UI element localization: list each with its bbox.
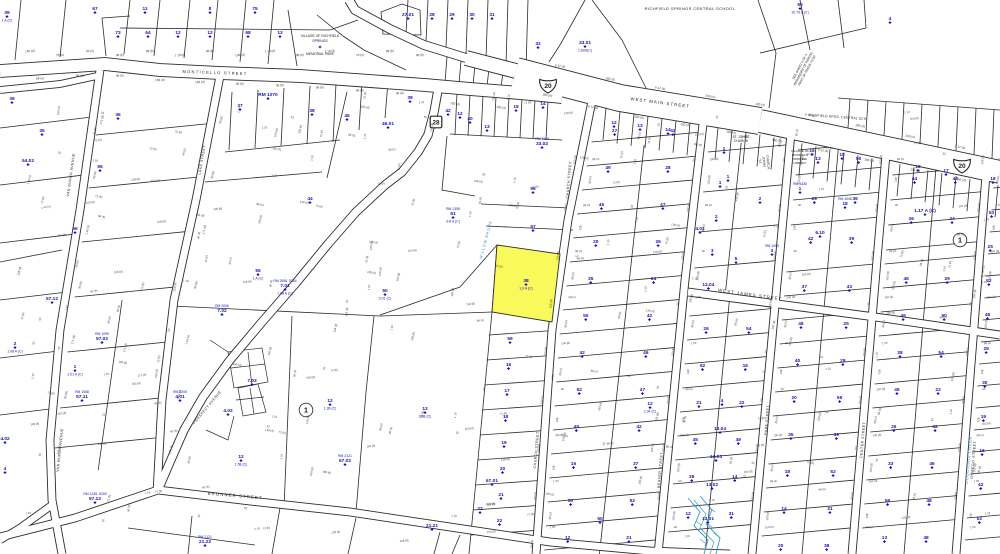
svg-text:52: 52: [577, 387, 583, 393]
svg-text:1 10: 1 10: [709, 497, 715, 502]
svg-text:1 10: 1 10: [949, 409, 954, 415]
svg-text:150 (d): 150 (d): [987, 295, 996, 300]
svg-text:128: 128: [980, 369, 985, 375]
svg-text:14: 14: [732, 474, 738, 480]
svg-text:72 (b): 72 (b): [757, 443, 765, 448]
svg-text:72 (b): 72 (b): [363, 91, 368, 99]
svg-text:48: 48: [985, 312, 991, 318]
svg-text:96 (b): 96 (b): [316, 85, 324, 89]
svg-text:33.02: 33.02: [536, 141, 548, 147]
svg-text:29: 29: [812, 196, 818, 202]
svg-text:29: 29: [944, 276, 950, 282]
svg-text:15: 15: [839, 152, 845, 158]
svg-text:1 10 (d): 1 10 (d): [324, 49, 335, 54]
svg-text:12: 12: [685, 511, 691, 517]
svg-text:36: 36: [689, 474, 695, 480]
svg-text:57.12: 57.12: [46, 296, 58, 302]
svg-text:26: 26: [891, 424, 897, 430]
svg-text:99 (s): 99 (s): [865, 525, 873, 530]
svg-text:13: 13: [277, 30, 283, 36]
svg-text:1 10: 1 10: [818, 187, 824, 192]
svg-text:96 (b): 96 (b): [276, 83, 284, 87]
svg-text:1 50: 1 50: [550, 525, 556, 529]
svg-text:66 (d): 66 (d): [961, 396, 966, 404]
svg-text:1 10: 1 10: [904, 110, 910, 115]
svg-text:24: 24: [651, 276, 657, 282]
svg-text:66 (d): 66 (d): [536, 444, 541, 452]
svg-text:128: 128: [865, 513, 870, 519]
svg-text:39: 39: [834, 432, 840, 438]
svg-text:50: 50: [856, 156, 862, 162]
svg-text:66 (d): 66 (d): [874, 204, 879, 212]
svg-text:72 (b): 72 (b): [155, 489, 163, 494]
svg-text:20: 20: [593, 239, 599, 245]
svg-text:1: 1: [719, 180, 722, 186]
svg-text:49: 49: [894, 387, 900, 393]
svg-text:75: 75: [252, 6, 258, 12]
svg-text:1 10: 1 10: [643, 286, 648, 292]
svg-text:14: 14: [665, 127, 671, 133]
svg-text:40 (s): 40 (s): [889, 224, 894, 232]
svg-text:3: 3: [711, 248, 714, 254]
svg-text:72 (b): 72 (b): [500, 411, 508, 416]
svg-text:46.01: 46.01: [382, 121, 394, 127]
svg-text:72 (b): 72 (b): [647, 136, 652, 144]
svg-text:12: 12: [647, 401, 653, 407]
svg-text:66 (d): 66 (d): [862, 348, 867, 356]
svg-text:18: 18: [785, 469, 791, 475]
svg-text:39: 39: [849, 236, 855, 242]
svg-text:150 (d): 150 (d): [235, 53, 245, 58]
svg-text:128: 128: [968, 513, 973, 519]
svg-text:98 (b): 98 (b): [116, 53, 124, 58]
svg-text:2: 2: [14, 341, 17, 347]
svg-text:128: 128: [686, 369, 691, 375]
svg-text:128: 128: [877, 369, 882, 375]
svg-text:72 (b): 72 (b): [94, 138, 102, 143]
svg-text:33.01: 33.01: [579, 40, 591, 46]
svg-text:55: 55: [97, 164, 103, 170]
svg-text:1 50: 1 50: [553, 479, 559, 483]
svg-text:1 10: 1 10: [825, 366, 831, 371]
svg-text:1 50: 1 50: [970, 525, 976, 529]
svg-text:72 (b): 72 (b): [806, 151, 814, 156]
svg-text:7.02: 7.02: [217, 308, 227, 314]
svg-text:76 (s): 76 (s): [356, 53, 364, 58]
svg-text:40 (s): 40 (s): [770, 464, 775, 472]
svg-text:99 (s): 99 (s): [583, 203, 591, 208]
svg-text:12: 12: [207, 30, 213, 36]
svg-text:1 A (C): 1 A (C): [253, 276, 264, 280]
svg-text:150 (d): 150 (d): [773, 433, 782, 438]
svg-text:72 (b): 72 (b): [612, 180, 620, 185]
svg-text:66 (s): 66 (s): [478, 197, 483, 205]
svg-text:1.01 A (C): 1.01 A (C): [67, 372, 83, 376]
svg-text:67.01: 67.01: [486, 478, 498, 484]
svg-text:36: 36: [852, 196, 858, 202]
svg-text:82 (s): 82 (s): [86, 49, 94, 54]
svg-text:1.17 A (C): 1.17 A (C): [914, 208, 936, 214]
svg-text:40 (s): 40 (s): [701, 224, 706, 232]
svg-text:1.58 (C): 1.58 (C): [235, 462, 248, 466]
svg-text:98 (b): 98 (b): [146, 49, 154, 54]
svg-text:48: 48: [923, 535, 929, 541]
svg-text:66 (d): 66 (d): [777, 204, 782, 212]
svg-text:5: 5: [735, 256, 738, 262]
svg-text:18: 18: [842, 201, 848, 207]
svg-text:72 (b): 72 (b): [377, 181, 385, 186]
svg-text:72 (b): 72 (b): [947, 260, 952, 268]
svg-text:13: 13: [484, 124, 490, 130]
svg-text:RM 1070: RM 1070: [258, 92, 278, 98]
svg-text:2.34 (C): 2.34 (C): [644, 409, 657, 413]
svg-text:98 (b): 98 (b): [386, 49, 394, 54]
svg-text:1 10: 1 10: [774, 224, 780, 229]
svg-text:1 10: 1 10: [271, 173, 277, 178]
svg-text:40 (s): 40 (s): [873, 416, 878, 424]
svg-text:30: 30: [469, 12, 475, 18]
svg-text:37: 37: [633, 461, 639, 467]
svg-text:26: 26: [655, 239, 661, 245]
svg-text:66 (s): 66 (s): [388, 147, 396, 152]
svg-text:60: 60: [797, 2, 803, 8]
svg-text:72 (b): 72 (b): [762, 230, 767, 238]
svg-text:98 (b): 98 (b): [416, 53, 424, 58]
svg-text:72 (b): 72 (b): [397, 163, 402, 171]
svg-text:66 (s): 66 (s): [939, 315, 947, 320]
svg-text:13.01: 13.01: [702, 516, 714, 522]
svg-text:40 (s): 40 (s): [570, 272, 575, 280]
svg-text:52: 52: [700, 363, 706, 369]
svg-text:45: 45: [693, 437, 699, 443]
svg-text:54.02: 54.02: [22, 158, 34, 164]
svg-text:12: 12: [175, 30, 181, 36]
svg-text:72 (b): 72 (b): [524, 100, 532, 105]
svg-text:RM 1245, 5300: RM 1245, 5300: [83, 492, 106, 496]
svg-text:1 10: 1 10: [874, 352, 879, 358]
svg-text:1 50: 1 50: [882, 341, 888, 345]
svg-text:RM 1398: RM 1398: [446, 207, 460, 211]
svg-text:20: 20: [792, 395, 798, 401]
svg-text:12: 12: [457, 111, 463, 117]
svg-text:17: 17: [504, 388, 510, 394]
svg-text:RM 2121: RM 2121: [338, 454, 352, 458]
svg-text:40: 40: [467, 116, 473, 122]
svg-text:27: 27: [612, 128, 618, 134]
svg-text:20: 20: [958, 163, 966, 170]
svg-text:57.02: 57.02: [96, 336, 108, 342]
svg-text:4: 4: [889, 16, 892, 22]
svg-text:128: 128: [578, 225, 583, 231]
svg-text:39: 39: [9, 96, 15, 102]
svg-text:27.01: 27.01: [402, 12, 414, 18]
svg-text:2: 2: [715, 214, 718, 220]
svg-text:99 (s): 99 (s): [976, 433, 984, 438]
svg-text:128: 128: [991, 225, 996, 231]
svg-text:36: 36: [909, 216, 915, 222]
svg-text:RM 4008: RM 4008: [838, 197, 852, 201]
svg-text:1 10 (d): 1 10 (d): [174, 53, 185, 58]
svg-text:128: 128: [976, 417, 981, 423]
svg-text:96 (b): 96 (b): [76, 73, 84, 77]
svg-text:13.03: 13.03: [710, 454, 722, 460]
svg-text:67.02: 67.02: [339, 458, 351, 464]
svg-text:1 50: 1 50: [695, 295, 701, 299]
svg-text:150 (d): 150 (d): [786, 295, 795, 300]
svg-text:72 (b): 72 (b): [619, 151, 624, 159]
svg-text:1 10: 1 10: [692, 276, 698, 281]
svg-text:150 (d): 150 (d): [868, 479, 877, 484]
svg-text:128: 128: [792, 225, 797, 231]
svg-text:150 (d): 150 (d): [195, 80, 205, 85]
svg-text:40 (s): 40 (s): [558, 368, 563, 376]
svg-text:1 10: 1 10: [271, 414, 277, 419]
svg-text:RM 1005: RM 1005: [765, 244, 779, 248]
svg-text:72 (b): 72 (b): [515, 202, 520, 210]
svg-text:98 (b): 98 (b): [206, 49, 214, 54]
svg-text:13.04: 13.04: [702, 282, 714, 288]
svg-text:1 10: 1 10: [983, 217, 989, 222]
svg-text:1 10: 1 10: [92, 158, 98, 163]
svg-text:RM 1088: RM 1088: [75, 390, 89, 394]
svg-text:1 10: 1 10: [981, 280, 987, 285]
svg-text:47: 47: [640, 387, 646, 393]
svg-text:1 10: 1 10: [453, 412, 458, 418]
svg-text:28: 28: [665, 165, 671, 171]
svg-text:1 10: 1 10: [684, 534, 690, 539]
svg-text:99 (s): 99 (s): [897, 157, 905, 162]
svg-text:1 10: 1 10: [25, 511, 31, 516]
svg-text:21: 21: [626, 535, 632, 541]
svg-text:49: 49: [574, 424, 580, 430]
svg-text:40 (s): 40 (s): [548, 512, 553, 520]
svg-text:72 (b): 72 (b): [914, 141, 922, 146]
svg-text:76 (s): 76 (s): [56, 53, 64, 58]
svg-text:19: 19: [981, 414, 987, 420]
svg-text:99 (s): 99 (s): [770, 479, 778, 484]
svg-text:64: 64: [145, 30, 151, 36]
svg-text:72 (b): 72 (b): [527, 512, 535, 517]
svg-text:150 (d): 150 (d): [25, 49, 35, 54]
svg-text:66 (d): 66 (d): [533, 492, 538, 500]
svg-text:72 (b): 72 (b): [319, 130, 324, 138]
svg-text:45: 45: [344, 113, 350, 119]
svg-text:1.9 A (C): 1.9 A (C): [519, 286, 533, 290]
svg-text:30: 30: [982, 380, 988, 386]
svg-text:ST.: ST.: [758, 159, 762, 164]
svg-text:3-8 A (C): 3-8 A (C): [446, 219, 460, 223]
svg-text:1 10 (d): 1 10 (d): [264, 49, 275, 54]
svg-text:72 (b): 72 (b): [263, 526, 271, 531]
svg-text:21.22: 21.22: [199, 539, 211, 545]
svg-text:66 (s): 66 (s): [292, 369, 297, 377]
svg-text:150 (d): 150 (d): [709, 157, 718, 162]
svg-text:1 10: 1 10: [279, 453, 284, 459]
svg-text:46: 46: [904, 276, 910, 282]
svg-text:73: 73: [115, 30, 121, 36]
svg-text:21: 21: [498, 492, 504, 498]
svg-text:50: 50: [597, 516, 603, 522]
svg-text:1: 1: [723, 146, 726, 152]
svg-text:128: 128: [555, 417, 560, 423]
svg-text:CHURCH: CHURCH: [734, 139, 749, 143]
svg-text:22: 22: [497, 518, 503, 524]
svg-text:29: 29: [983, 346, 989, 352]
svg-text:150 (d): 150 (d): [155, 78, 165, 83]
svg-text:40 (s): 40 (s): [774, 416, 779, 424]
svg-text:38: 38: [523, 278, 529, 284]
svg-text:13: 13: [815, 156, 821, 162]
svg-text:66 (d): 66 (d): [858, 396, 863, 404]
svg-text:150 (d): 150 (d): [680, 433, 689, 438]
svg-text:31: 31: [827, 506, 833, 512]
svg-text:58 (s): 58 (s): [36, 76, 44, 80]
svg-text:1: 1: [74, 364, 77, 370]
svg-text:40 (s): 40 (s): [588, 176, 593, 184]
svg-text:35: 35: [588, 276, 594, 282]
svg-text:1: 1: [727, 174, 730, 180]
svg-text:12: 12: [327, 398, 333, 404]
svg-text:56: 56: [72, 226, 78, 232]
svg-text:68: 68: [245, 30, 251, 36]
svg-text:99 (s): 99 (s): [705, 203, 713, 208]
svg-text:RM 7118: RM 7118: [535, 137, 549, 141]
svg-text:1 10: 1 10: [262, 125, 268, 130]
svg-text:40 (s): 40 (s): [563, 320, 568, 328]
svg-text:99 (s): 99 (s): [592, 157, 600, 162]
svg-text:1.08 A (C): 1.08 A (C): [277, 291, 293, 295]
svg-text:54: 54: [938, 350, 944, 356]
svg-text:1 50: 1 50: [691, 341, 697, 345]
svg-text:66 (d): 66 (d): [850, 492, 855, 500]
svg-text:10.75 A (C): 10.75 A (C): [791, 10, 809, 14]
svg-text:66 (d): 66 (d): [666, 396, 671, 404]
svg-text:8: 8: [209, 6, 212, 12]
svg-text:46: 46: [599, 202, 605, 208]
svg-text:38: 38: [897, 350, 903, 356]
svg-text:150 (d): 150 (d): [876, 387, 885, 392]
svg-text:6.10: 6.10: [815, 230, 825, 236]
svg-text:66 (s): 66 (s): [606, 441, 614, 446]
svg-text:1 10: 1 10: [363, 133, 368, 139]
svg-text:42: 42: [445, 108, 451, 114]
svg-text:96 (b): 96 (b): [396, 91, 404, 95]
svg-text:40 (s): 40 (s): [690, 320, 695, 328]
svg-text:40 (s): 40 (s): [881, 320, 886, 328]
svg-text:2: 2: [759, 196, 762, 202]
svg-text:128: 128: [894, 177, 899, 183]
svg-text:1 50: 1 50: [996, 203, 1000, 207]
svg-text:SPRINGS: SPRINGS: [312, 39, 328, 43]
svg-text:RM 2121: RM 2121: [198, 535, 212, 539]
svg-text:1 10: 1 10: [390, 324, 395, 330]
svg-text:55: 55: [255, 268, 261, 274]
svg-text:66 (s): 66 (s): [228, 257, 233, 265]
svg-text:1 10: 1 10: [254, 526, 260, 531]
svg-text:50: 50: [583, 313, 589, 319]
svg-text:31: 31: [489, 12, 495, 18]
svg-text:20: 20: [544, 83, 552, 90]
svg-text:66 (d): 66 (d): [529, 540, 534, 548]
svg-text:RICHFIELD SPRINGS CENTRAL SCHO: RICHFIELD SPRINGS CENTRAL SCHOOL: [645, 6, 736, 11]
svg-text:4: 4: [4, 466, 7, 472]
svg-text:42: 42: [670, 128, 676, 134]
svg-text:36: 36: [115, 112, 121, 118]
svg-text:35: 35: [788, 432, 794, 438]
svg-text:20: 20: [778, 543, 784, 549]
svg-text:22: 22: [477, 506, 483, 512]
svg-text:52: 52: [977, 516, 983, 522]
svg-text:13: 13: [882, 535, 888, 541]
svg-text:66 (s): 66 (s): [268, 280, 273, 288]
svg-text:28: 28: [840, 358, 846, 364]
svg-text:66 (s): 66 (s): [196, 232, 201, 240]
svg-text:72 (b): 72 (b): [757, 416, 765, 421]
svg-text:1.36 (C): 1.36 (C): [324, 406, 337, 410]
svg-text:22: 22: [935, 387, 941, 393]
svg-text:66 (s): 66 (s): [477, 318, 485, 323]
svg-text:47: 47: [660, 202, 666, 208]
svg-text:66 (d): 66 (d): [953, 492, 958, 500]
svg-text:32: 32: [535, 41, 541, 47]
svg-text:34: 34: [949, 216, 955, 222]
svg-text:99 (s): 99 (s): [984, 341, 992, 346]
svg-text:12: 12: [611, 120, 617, 126]
svg-text:1 10: 1 10: [183, 278, 189, 283]
svg-text:150 (d): 150 (d): [990, 249, 999, 254]
svg-text:57.11: 57.11: [76, 394, 88, 400]
svg-text:32: 32: [932, 424, 938, 430]
svg-text:13: 13: [637, 123, 643, 129]
svg-text:VILLAGE OF RICHFIELD: VILLAGE OF RICHFIELD: [301, 34, 340, 38]
svg-text:RM 2006: RM 2006: [215, 304, 229, 308]
svg-text:66 (s): 66 (s): [577, 256, 585, 261]
svg-text:16: 16: [743, 363, 749, 369]
svg-text:1 10: 1 10: [506, 94, 511, 100]
svg-text:20: 20: [500, 466, 506, 472]
svg-text:66 (d): 66 (d): [750, 492, 755, 500]
svg-text:150 (d): 150 (d): [872, 433, 881, 438]
svg-text:72 (b): 72 (b): [826, 146, 834, 151]
svg-text:4.02: 4.02: [0, 436, 10, 442]
svg-text:66 (s): 66 (s): [126, 504, 131, 512]
svg-text:1 10: 1 10: [367, 284, 372, 290]
svg-text:52: 52: [830, 469, 836, 475]
svg-text:48: 48: [926, 498, 932, 504]
svg-text:13.04: 13.04: [714, 426, 726, 432]
svg-text:16: 16: [571, 461, 577, 467]
svg-text:42: 42: [636, 424, 642, 430]
svg-text:72 (b): 72 (b): [93, 127, 98, 135]
svg-text:57: 57: [530, 224, 536, 230]
svg-text:1 10: 1 10: [419, 100, 425, 105]
svg-text:21.21: 21.21: [426, 523, 438, 529]
svg-text:38: 38: [824, 543, 830, 549]
svg-text:42: 42: [647, 313, 653, 319]
svg-text:55: 55: [885, 498, 891, 504]
svg-text:72 (b): 72 (b): [740, 134, 748, 139]
svg-text:128: 128: [551, 465, 556, 471]
svg-text:28: 28: [429, 12, 435, 18]
svg-text:40: 40: [795, 358, 801, 364]
svg-text:38: 38: [309, 108, 315, 114]
svg-text:72 (b): 72 (b): [980, 273, 988, 278]
svg-text:25: 25: [843, 321, 849, 327]
svg-text:7.01: 7.01: [280, 283, 290, 289]
svg-text:66 (s): 66 (s): [818, 487, 826, 492]
svg-text:61: 61: [450, 211, 456, 217]
svg-text:42: 42: [579, 350, 585, 356]
